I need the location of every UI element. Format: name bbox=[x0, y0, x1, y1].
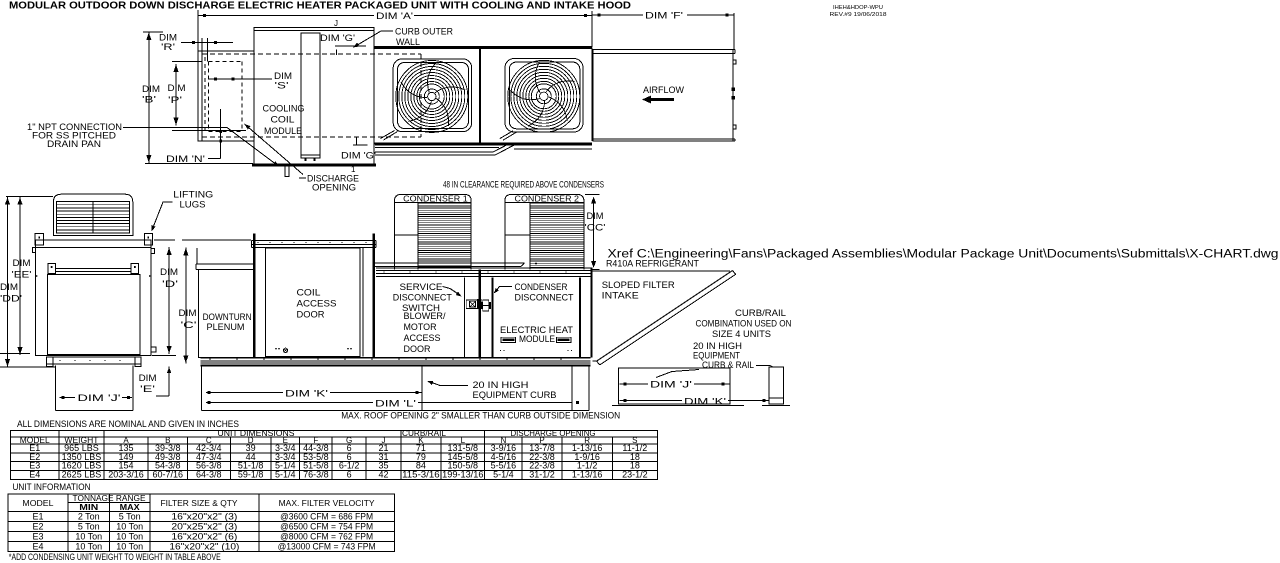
svg-text:'P': 'P' bbox=[168, 95, 182, 106]
svg-text:23-1/2: 23-1/2 bbox=[622, 470, 648, 480]
svg-text:42: 42 bbox=[378, 470, 388, 480]
svg-text:DOOR: DOOR bbox=[404, 344, 431, 355]
svg-text:OPENING: OPENING bbox=[312, 183, 356, 194]
svg-text:E2: E2 bbox=[32, 521, 43, 531]
svg-text:199-13/16: 199-13/16 bbox=[442, 470, 483, 480]
svg-text:DIM 'J': DIM 'J' bbox=[78, 393, 121, 404]
svg-text:EQUIPMENT CURB: EQUIPMENT CURB bbox=[473, 390, 557, 401]
svg-text:10 Ton: 10 Ton bbox=[75, 531, 102, 541]
svg-text:1-13/16: 1-13/16 bbox=[572, 470, 603, 480]
svg-text:16"x20"x2" (6): 16"x20"x2" (6) bbox=[171, 531, 237, 541]
svg-text:COIL: COIL bbox=[297, 288, 321, 299]
svg-text:SERVICE: SERVICE bbox=[400, 282, 443, 293]
svg-text:UNIT INFORMATION: UNIT INFORMATION bbox=[13, 482, 91, 493]
svg-text:DIM: DIM bbox=[168, 83, 186, 94]
svg-text:MOTOR: MOTOR bbox=[404, 322, 437, 333]
svg-text:COIL: COIL bbox=[271, 115, 295, 126]
svg-text:'EE': 'EE' bbox=[12, 270, 32, 281]
svg-text:DIM 'F': DIM 'F' bbox=[645, 11, 683, 22]
svg-text:*ADD CONDENSING UNIT WEIGHT TO: *ADD CONDENSING UNIT WEIGHT TO WEIGHT IN… bbox=[9, 552, 221, 563]
svg-text:5-1/4: 5-1/4 bbox=[493, 470, 514, 480]
svg-text:DIM: DIM bbox=[179, 308, 197, 319]
svg-text:LUGS: LUGS bbox=[180, 200, 206, 211]
svg-text:CURB/RAIL: CURB/RAIL bbox=[402, 429, 447, 438]
svg-text:MODEL: MODEL bbox=[22, 499, 54, 508]
svg-text:DIM: DIM bbox=[0, 282, 18, 293]
svg-text:COMBINATION USED ON: COMBINATION USED ON bbox=[696, 319, 792, 330]
svg-text:48 IN CLEARANCE REQUIRED ABOVE: 48 IN CLEARANCE REQUIRED ABOVE CONDENSER… bbox=[443, 180, 604, 191]
svg-text:CONDENSER: CONDENSER bbox=[515, 282, 568, 293]
svg-text:10 Ton: 10 Ton bbox=[75, 541, 102, 551]
svg-text:'D': 'D' bbox=[162, 279, 178, 290]
svg-text:2 Ton: 2 Ton bbox=[78, 511, 100, 521]
svg-text:DRAIN PAN: DRAIN PAN bbox=[47, 139, 101, 150]
svg-text:CONDENSER 1: CONDENSER 1 bbox=[403, 193, 468, 203]
svg-text:'C': 'C' bbox=[181, 320, 197, 331]
svg-text:Xref C:\Engineering\Fans\Packa: Xref C:\Engineering\Fans\Packaged Assemb… bbox=[608, 249, 1279, 261]
svg-text:5 Ton: 5 Ton bbox=[78, 521, 100, 531]
svg-text:'S': 'S' bbox=[275, 81, 289, 92]
svg-text:DISCONNECT: DISCONNECT bbox=[393, 293, 452, 304]
svg-text:ACCESS: ACCESS bbox=[404, 333, 441, 344]
svg-text:E4: E4 bbox=[32, 541, 43, 551]
svg-text:'B': 'B' bbox=[142, 95, 156, 106]
svg-text:DIM 'G': DIM 'G' bbox=[320, 33, 355, 44]
svg-text:WALL: WALL bbox=[396, 37, 420, 48]
svg-text:203-3/16: 203-3/16 bbox=[108, 470, 144, 480]
svg-text:MODULE: MODULE bbox=[519, 334, 555, 345]
svg-text:16"x20"x2" (10): 16"x20"x2" (10) bbox=[169, 541, 239, 551]
svg-text:DIM: DIM bbox=[13, 258, 31, 269]
svg-text:CURB/RAIL: CURB/RAIL bbox=[735, 308, 786, 319]
svg-text:'DD': 'DD' bbox=[0, 294, 22, 305]
svg-text:5-1/4: 5-1/4 bbox=[275, 470, 296, 480]
svg-text:FILTER SIZE & QTY: FILTER SIZE & QTY bbox=[161, 499, 239, 508]
svg-text:MAX. FILTER VELOCITY: MAX. FILTER VELOCITY bbox=[279, 499, 376, 508]
svg-text:E4: E4 bbox=[29, 470, 40, 480]
svg-text:CURB OUTER: CURB OUTER bbox=[395, 27, 453, 38]
svg-text:1: 1 bbox=[351, 165, 356, 174]
svg-text:ALL DIMENSIONS ARE NOMINAL AND: ALL DIMENSIONS ARE NOMINAL AND GIVEN IN … bbox=[17, 419, 239, 430]
svg-text:MODULAR OUTDOOR DOWN DISCHARGE: MODULAR OUTDOOR DOWN DISCHARGE ELECTRIC … bbox=[9, 0, 631, 12]
svg-text:'R': 'R' bbox=[161, 42, 175, 53]
svg-text:CONDENSER 2: CONDENSER 2 bbox=[515, 193, 580, 203]
svg-text:MAX. ROOF OPENING 2" SMALLER T: MAX. ROOF OPENING 2" SMALLER THAN CURB O… bbox=[341, 411, 620, 422]
svg-text:@3600 CFM = 686 FPM: @3600 CFM = 686 FPM bbox=[280, 511, 373, 521]
svg-text:DIM: DIM bbox=[587, 211, 604, 222]
svg-text:'CC': 'CC' bbox=[585, 223, 606, 234]
svg-text:64-3/8: 64-3/8 bbox=[196, 470, 222, 480]
svg-text:'E': 'E' bbox=[140, 384, 155, 395]
svg-text:AIRFLOW: AIRFLOW bbox=[643, 85, 684, 96]
svg-text:ACCESS: ACCESS bbox=[297, 299, 337, 310]
svg-text:60-7/16: 60-7/16 bbox=[152, 470, 183, 480]
svg-text:DIM: DIM bbox=[142, 84, 160, 95]
svg-text:@8000 CFM = 762 FPM: @8000 CFM = 762 FPM bbox=[280, 531, 373, 541]
svg-text:CURB & RAIL: CURB & RAIL bbox=[702, 360, 754, 371]
svg-text:J: J bbox=[334, 19, 338, 28]
svg-text:DIM 'G': DIM 'G' bbox=[341, 151, 376, 162]
svg-text:DIM 'K': DIM 'K' bbox=[285, 389, 328, 400]
svg-text:PLENUM: PLENUM bbox=[207, 322, 245, 333]
svg-text:MODULE: MODULE bbox=[264, 126, 302, 137]
svg-text:INTAKE: INTAKE bbox=[602, 291, 639, 302]
svg-text:@13000 CFM = 743 FPM: @13000 CFM = 743 FPM bbox=[278, 541, 376, 551]
svg-text:10 Ton: 10 Ton bbox=[116, 531, 143, 541]
svg-text:IHEH&HDOP-WPU: IHEH&HDOP-WPU bbox=[833, 5, 883, 11]
svg-text:DIM 'K': DIM 'K' bbox=[684, 396, 726, 407]
svg-text:2625 LBS: 2625 LBS bbox=[62, 470, 102, 480]
svg-text:R410A REFRIGERANT: R410A REFRIGERANT bbox=[606, 259, 699, 270]
svg-text:@6500 CFM = 754 FPM: @6500 CFM = 754 FPM bbox=[280, 521, 373, 531]
svg-text:TONNAGE RANGE: TONNAGE RANGE bbox=[73, 494, 146, 503]
svg-text:REV.#9 19/06/2018: REV.#9 19/06/2018 bbox=[830, 12, 887, 18]
svg-text:SLOPED FILTER: SLOPED FILTER bbox=[602, 280, 675, 291]
svg-text:20"x25"x2" (3): 20"x25"x2" (3) bbox=[171, 521, 237, 531]
svg-text:115-3/16: 115-3/16 bbox=[402, 470, 440, 480]
svg-text:DIM 'L': DIM 'L' bbox=[375, 399, 416, 410]
svg-text:BLOWER/: BLOWER/ bbox=[404, 311, 446, 322]
svg-text:DIM 'A': DIM 'A' bbox=[376, 11, 413, 22]
svg-text:E3: E3 bbox=[32, 531, 43, 541]
svg-text:16"x20"x2" (3): 16"x20"x2" (3) bbox=[171, 511, 237, 521]
svg-text:DISCONNECT: DISCONNECT bbox=[515, 293, 574, 304]
svg-text:5 Ton: 5 Ton bbox=[119, 511, 141, 521]
svg-text:DOOR: DOOR bbox=[297, 310, 325, 321]
svg-text:E1: E1 bbox=[32, 511, 43, 521]
svg-text:DISCHARGE OPENING: DISCHARGE OPENING bbox=[511, 429, 596, 438]
svg-text:59-1/8: 59-1/8 bbox=[238, 470, 264, 480]
svg-text:76-3/8: 76-3/8 bbox=[303, 470, 329, 480]
svg-text:10 Ton: 10 Ton bbox=[116, 521, 143, 531]
svg-text:10 Ton: 10 Ton bbox=[116, 541, 143, 551]
svg-text:31-1/2: 31-1/2 bbox=[529, 470, 555, 480]
svg-text:DIM 'J': DIM 'J' bbox=[650, 380, 692, 391]
svg-text:COOLING: COOLING bbox=[263, 104, 305, 115]
svg-text:DIM: DIM bbox=[160, 267, 178, 278]
svg-text:DIM: DIM bbox=[139, 373, 157, 384]
svg-text:6: 6 bbox=[347, 470, 352, 480]
svg-text:SIZE 4 UNITS: SIZE 4 UNITS bbox=[712, 329, 771, 340]
